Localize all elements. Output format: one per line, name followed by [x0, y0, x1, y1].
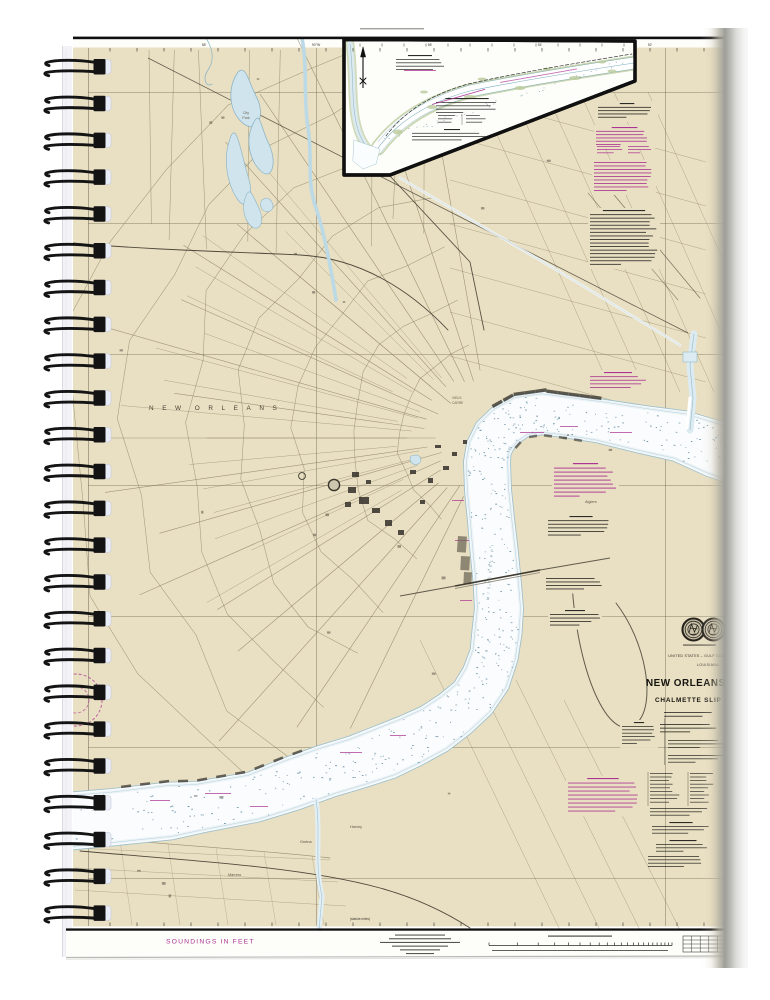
svg-text:Gretna: Gretna — [300, 840, 312, 844]
svg-text:CARRE: CARRE — [452, 401, 463, 405]
svg-text:N E W O R L E A N S: N E W O R L E A N S — [149, 405, 280, 412]
svg-text:54': 54' — [538, 43, 543, 47]
svg-text:Park: Park — [242, 116, 250, 120]
svg-text:58': 58' — [202, 43, 207, 47]
svg-text:90°W: 90°W — [312, 43, 321, 47]
svg-text:City: City — [243, 111, 249, 115]
svg-text:52': 52' — [648, 43, 653, 47]
svg-text:(statute miles): (statute miles) — [350, 917, 370, 921]
svg-text:SOUNDINGS IN FEET: SOUNDINGS IN FEET — [166, 939, 255, 946]
svg-text:56': 56' — [428, 43, 433, 47]
svg-text:Algiers: Algiers — [585, 500, 597, 504]
svg-text:Harvey: Harvey — [350, 825, 362, 829]
svg-text:Marrero: Marrero — [228, 873, 241, 877]
svg-text:VIEUX: VIEUX — [452, 396, 462, 400]
